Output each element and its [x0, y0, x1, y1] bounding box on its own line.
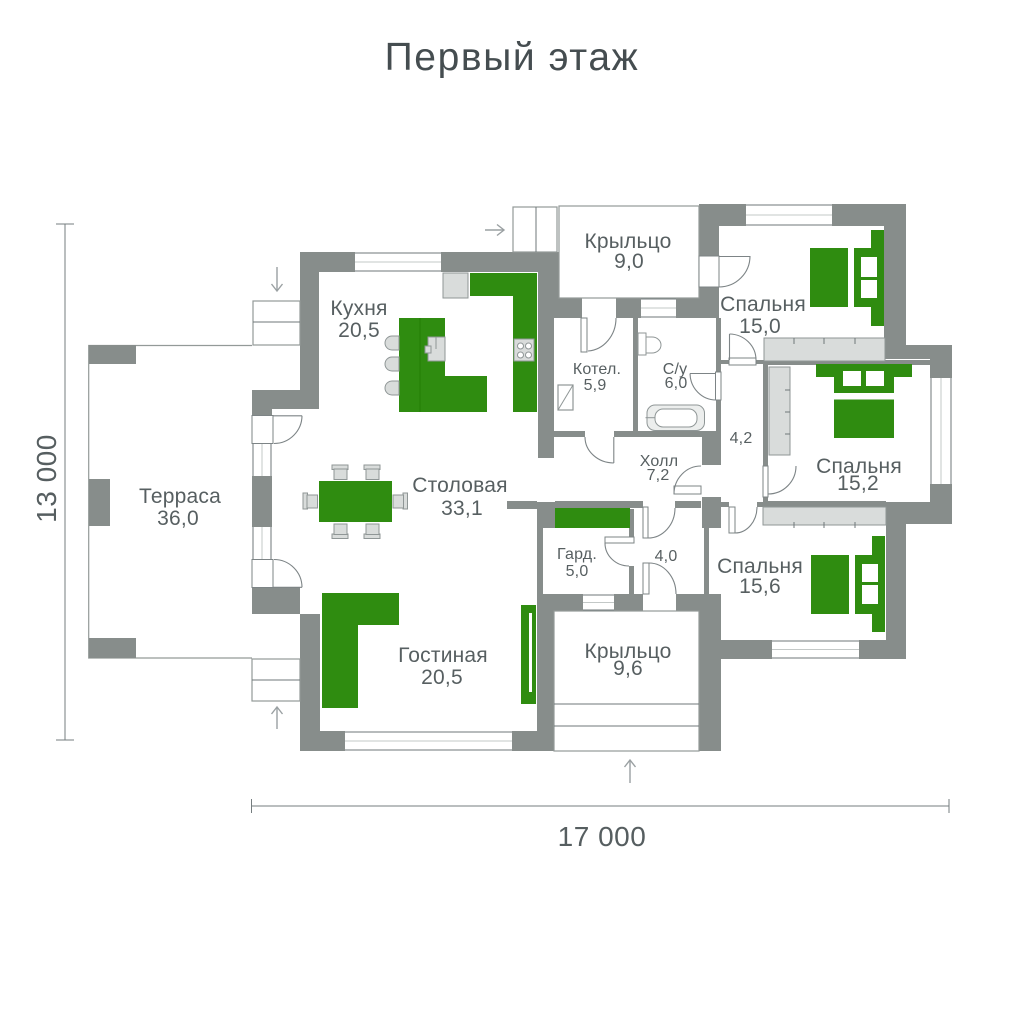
- svg-text:7,2: 7,2: [647, 467, 670, 484]
- svg-text:9,6: 9,6: [613, 657, 643, 680]
- svg-text:13 000: 13 000: [31, 434, 62, 523]
- svg-text:4,0: 4,0: [655, 548, 678, 565]
- svg-text:Котел.: Котел.: [573, 361, 621, 378]
- svg-text:17 000: 17 000: [558, 821, 647, 852]
- svg-text:20,5: 20,5: [338, 319, 380, 342]
- svg-text:Кухня: Кухня: [330, 297, 387, 320]
- svg-text:Первый этаж: Первый этаж: [385, 36, 640, 79]
- svg-text:15,2: 15,2: [837, 472, 879, 495]
- svg-text:4,2: 4,2: [730, 430, 753, 447]
- svg-text:15,0: 15,0: [739, 315, 781, 338]
- svg-text:6,0: 6,0: [665, 375, 688, 392]
- svg-text:Спальня: Спальня: [720, 293, 806, 316]
- svg-text:15,6: 15,6: [739, 575, 781, 598]
- svg-text:5,0: 5,0: [566, 563, 589, 580]
- svg-text:36,0: 36,0: [157, 507, 199, 530]
- svg-text:9,0: 9,0: [614, 250, 644, 273]
- svg-text:Гостиная: Гостиная: [398, 644, 488, 667]
- svg-text:Гард.: Гард.: [557, 546, 597, 563]
- svg-text:20,5: 20,5: [421, 666, 463, 689]
- svg-text:Терраса: Терраса: [139, 485, 221, 508]
- svg-text:Столовая: Столовая: [412, 474, 508, 497]
- svg-text:5,9: 5,9: [584, 377, 607, 394]
- svg-text:33,1: 33,1: [441, 497, 483, 520]
